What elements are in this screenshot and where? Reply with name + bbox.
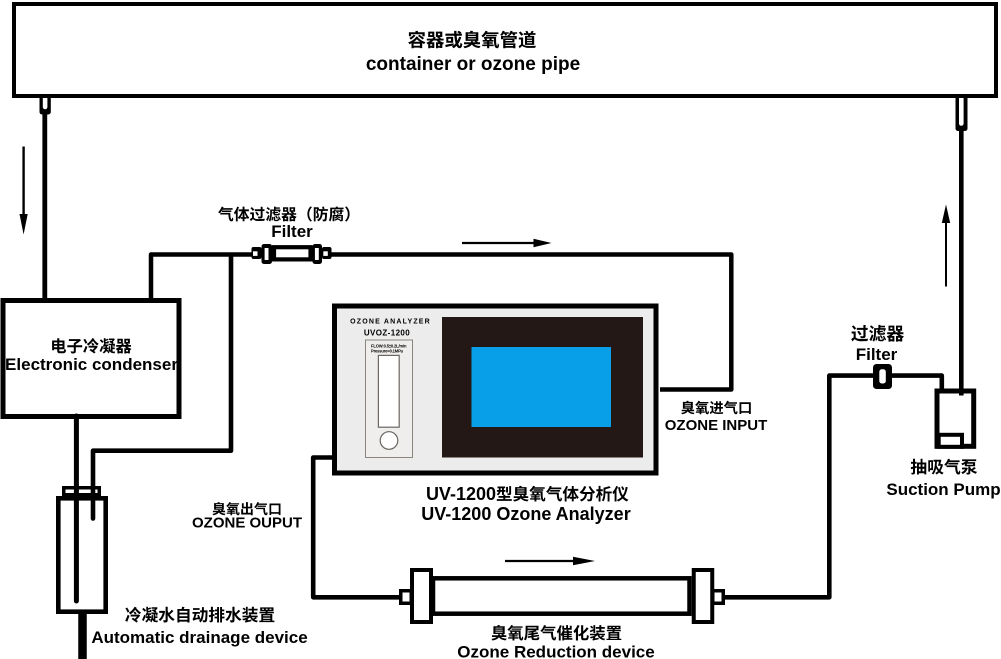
svg-text:Automatic drainage device: Automatic drainage device — [91, 628, 307, 647]
svg-text:Ozone Reduction device: Ozone Reduction device — [457, 643, 654, 659]
svg-text:container or ozone pipe: container or ozone pipe — [366, 54, 580, 75]
svg-text:OZONE INPUT: OZONE INPUT — [665, 417, 768, 434]
svg-text:OZONE OUPUT: OZONE OUPUT — [192, 515, 302, 532]
svg-text:Suction Pump: Suction Pump — [886, 480, 1000, 499]
svg-text:Filter: Filter — [856, 345, 898, 364]
svg-text:UV-1200: UV-1200 — [426, 484, 496, 504]
svg-text:OZONE ANALYZER: OZONE ANALYZER — [350, 319, 431, 326]
svg-text:UVOZ-1200: UVOZ-1200 — [364, 329, 410, 338]
svg-text:Filter: Filter — [271, 222, 313, 241]
svg-text:UV-1200 Ozone Analyzer: UV-1200 Ozone Analyzer — [421, 504, 630, 524]
svg-text:Electronic condenser: Electronic condenser — [5, 355, 178, 374]
svg-text:Pressure=0.1MPa: Pressure=0.1MPa — [371, 349, 404, 354]
